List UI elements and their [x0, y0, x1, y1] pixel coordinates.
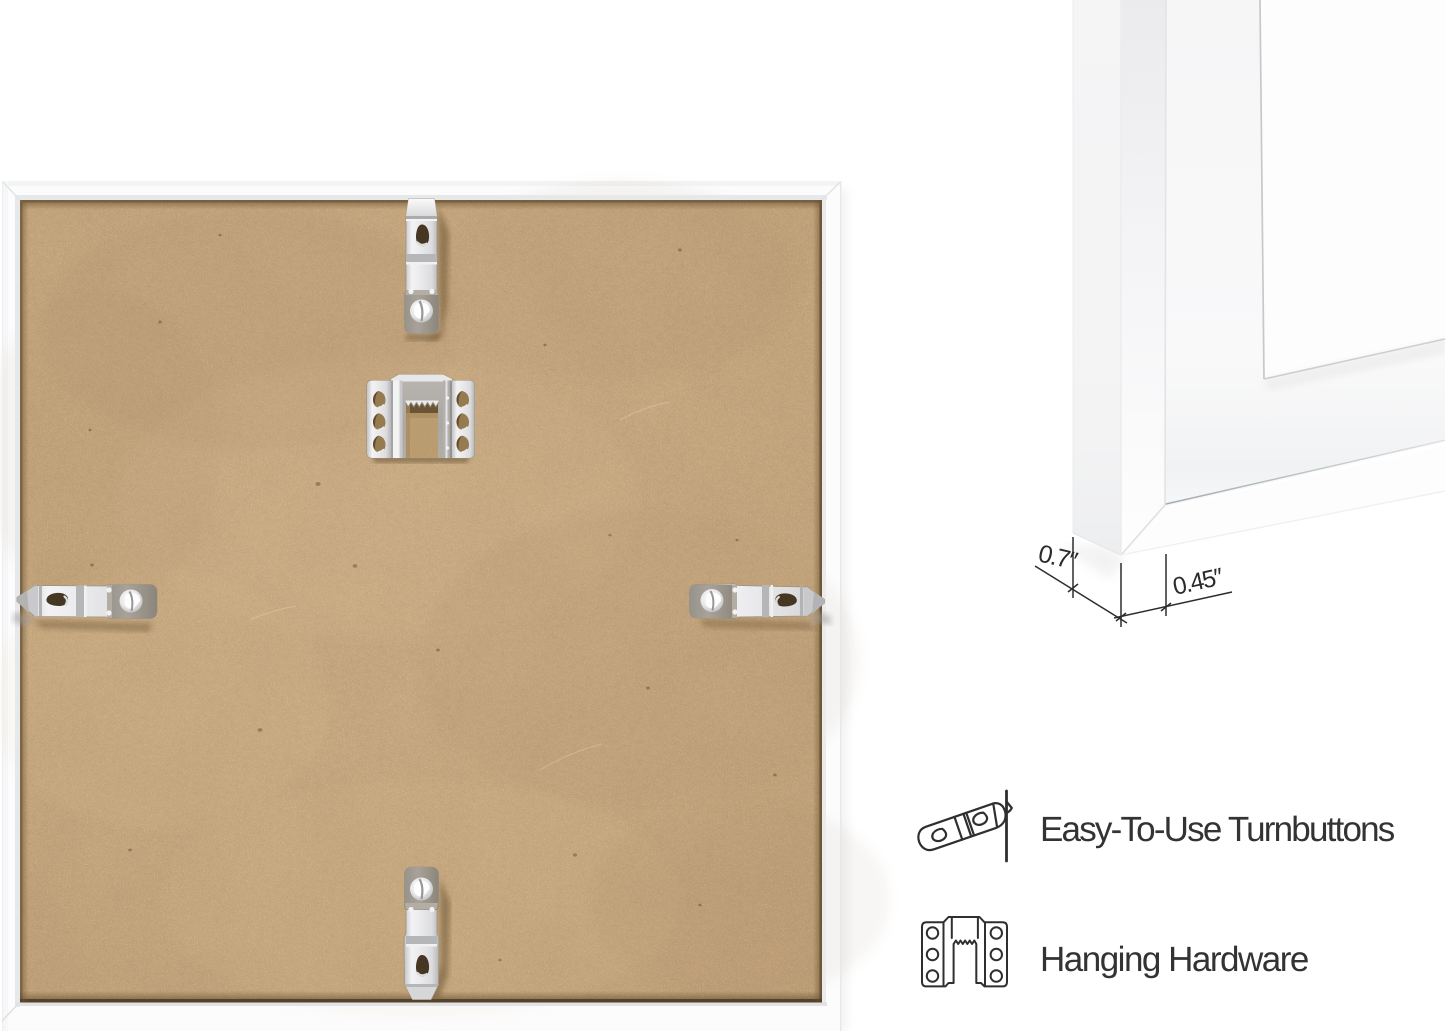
svg-text:Hanging Hardware: Hanging Hardware	[1040, 940, 1308, 979]
svg-text:Easy-To-Use Turnbuttons: Easy-To-Use Turnbuttons	[1040, 810, 1395, 849]
